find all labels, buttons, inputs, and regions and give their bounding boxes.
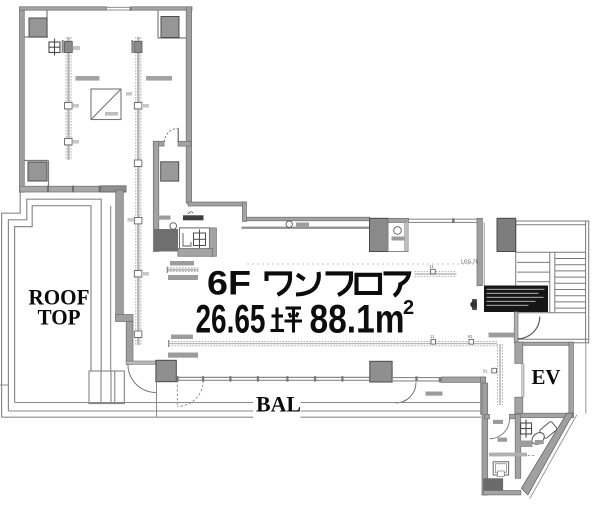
svg-text:11: 11 — [430, 334, 435, 339]
svg-text:91: 91 — [468, 334, 473, 339]
svg-text:6F: 6F — [207, 264, 251, 302]
svg-text:11: 11 — [430, 264, 435, 269]
svg-text:LGS-75: LGS-75 — [461, 260, 478, 266]
svg-text:91: 91 — [483, 369, 488, 374]
svg-text:BAL: BAL — [256, 391, 301, 416]
svg-text:TOP: TOP — [38, 305, 81, 330]
svg-text:26.65: 26.65 — [196, 298, 266, 342]
svg-text:EV: EV — [532, 365, 561, 389]
svg-text:2: 2 — [403, 297, 414, 319]
svg-text:88.1m: 88.1m — [310, 298, 405, 342]
